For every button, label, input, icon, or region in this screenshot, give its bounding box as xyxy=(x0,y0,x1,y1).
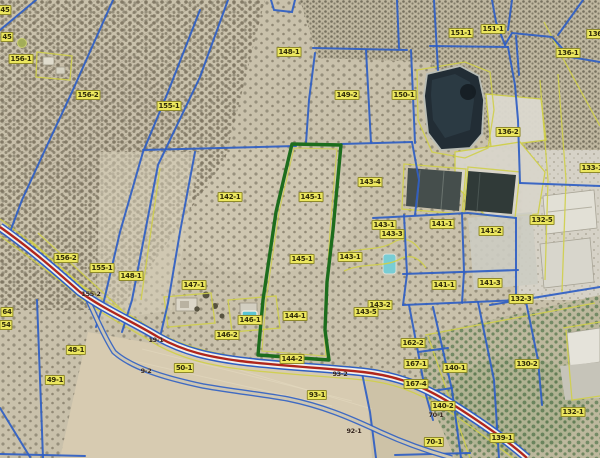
farm-building xyxy=(180,301,189,308)
swimming-pool xyxy=(242,311,257,321)
farm-building xyxy=(56,67,65,74)
aerial-basemap[interactable] xyxy=(0,0,600,458)
tree xyxy=(220,314,225,319)
pond-deep-spot xyxy=(460,84,476,100)
tree xyxy=(194,306,199,311)
map-viewport[interactable]: 4545156-1156-2155-1148-1149-2150-1151-11… xyxy=(0,0,600,458)
paved-yard xyxy=(468,212,538,290)
greenhouse-building xyxy=(406,168,462,211)
warehouse-building xyxy=(540,238,594,288)
greenhouse-building xyxy=(465,171,516,214)
small-pond xyxy=(18,39,27,48)
paved-yard xyxy=(560,362,600,400)
warehouse-building xyxy=(567,328,600,366)
tree xyxy=(203,292,210,299)
farm-building xyxy=(43,57,54,65)
